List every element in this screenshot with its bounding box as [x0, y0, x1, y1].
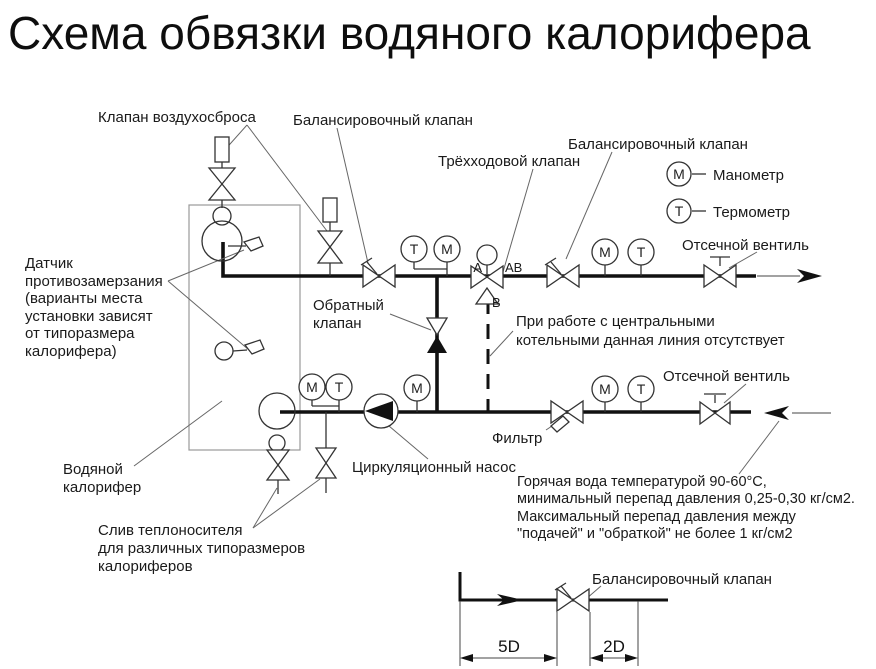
note-bypass: При работе с центральными котельными дан… [516, 313, 785, 349]
dimension-2d: 2D [603, 637, 625, 656]
detail-drawing: Балансировочный клапан 5D 2D [460, 571, 772, 666]
svg-text:Максимальный перепад давления: Максимальный перепад давления между [517, 509, 797, 525]
air-vent-valve-1 [209, 137, 235, 208]
svg-text:М: М [599, 244, 611, 260]
port-label-b: В [492, 295, 501, 310]
note-drain: Слив теплоносителя для различных типораз… [98, 522, 305, 575]
svg-text:М: М [441, 241, 453, 257]
legend-manometer-symbol: М [673, 166, 685, 182]
svg-text:калорифера): калорифера) [25, 343, 117, 360]
filter-strainer [551, 401, 583, 432]
flow-arrow-in [764, 406, 831, 420]
port-label-a: А [473, 260, 482, 275]
svg-text:калориферов: калориферов [98, 558, 193, 575]
gauge-thermometer-supply-right: Т [628, 239, 654, 276]
drain-valve-1 [267, 450, 289, 494]
svg-text:М: М [306, 379, 318, 395]
svg-text:М: М [599, 381, 611, 397]
gauge-manometer-return-right: М [592, 376, 618, 412]
gauge-manometer-supply-right: М [592, 239, 618, 276]
shutoff-valve-top [704, 257, 736, 287]
label-pump: Циркуляционный насос [352, 459, 516, 476]
svg-text:от типоразмера: от типоразмера [25, 325, 135, 342]
label-three-way-valve: Трёхходовой клапан [438, 153, 580, 170]
svg-text:Т: Т [637, 381, 646, 397]
dimension-5d: 5D [498, 637, 520, 656]
legend-thermometer-symbol: Т [675, 203, 684, 219]
circulation-pump [364, 394, 398, 428]
label-heater-line2: калорифер [63, 479, 141, 496]
svg-text:Датчик: Датчик [25, 255, 73, 272]
balancing-valve-2 [545, 258, 579, 287]
frost-sensor-2 [215, 340, 264, 360]
diagram-canvas: Схема обвязки водяного калорифера [0, 0, 876, 669]
note-frost-sensor: Датчик противозамерзания (варианты места… [25, 255, 163, 360]
shutoff-valve-bottom [700, 394, 730, 424]
svg-text:Горячая вода температурой 90-6: Горячая вода температурой 90-60°C, [517, 474, 767, 490]
svg-text:Т: Т [637, 244, 646, 260]
label-check-valve-line2: клапан [313, 315, 362, 332]
svg-text:При работе с центральными: При работе с центральными [516, 313, 715, 330]
drain-valve-2 [316, 412, 336, 493]
balancing-valve-detail [555, 583, 589, 611]
page-title: Схема обвязки водяного калорифера [8, 7, 811, 59]
svg-text:противозамерзания: противозамерзания [25, 273, 163, 290]
svg-text:Т: Т [410, 241, 419, 257]
legend-manometer-label: Манометр [713, 167, 784, 184]
note-hot-water: Горячая вода температурой 90-60°C, миним… [517, 474, 855, 542]
svg-text:котельными данная линия отсутс: котельными данная линия отсутствует [516, 332, 785, 349]
label-check-valve-line1: Обратный [313, 297, 384, 314]
label-balancing-valve-1: Балансировочный клапан [293, 112, 473, 129]
svg-text:М: М [411, 380, 423, 396]
svg-text:Слив теплоносителя: Слив теплоносителя [98, 522, 242, 539]
heater-bottom-header [259, 393, 295, 451]
svg-text:"подачей" и "обраткой" не боле: "подачей" и "обраткой" не более 1 кг/см2 [517, 526, 793, 542]
legend: М Манометр Т Термометр [667, 162, 790, 223]
gauge-thermometer-return-right: Т [628, 376, 654, 412]
check-valve [427, 318, 447, 353]
label-shutoff-valve-bottom: Отсечной вентиль [663, 368, 790, 385]
label-air-vent: Клапан воздухосброса [98, 109, 256, 126]
svg-text:Т: Т [335, 379, 344, 395]
legend-thermometer-label: Термометр [713, 204, 790, 221]
label-balancing-valve-2: Балансировочный клапан [568, 136, 748, 153]
svg-text:(варианты места: (варианты места [25, 290, 143, 307]
label-balancing-valve-detail: Балансировочный клапан [592, 571, 772, 588]
balancing-valve-1 [361, 258, 395, 287]
piping-diagram: Схема обвязки водяного калорифера [0, 0, 876, 669]
svg-text:установки зависят: установки зависят [25, 308, 153, 325]
svg-text:для различных типоразмеров: для различных типоразмеров [98, 540, 305, 557]
svg-text:минимальный перепад давления 0: минимальный перепад давления 0,25-0,30 к… [517, 491, 855, 507]
flow-arrow-out [757, 269, 822, 283]
frost-sensor-1 [228, 237, 263, 251]
label-shutoff-valve-top: Отсечной вентиль [682, 237, 809, 254]
label-heater-line1: Водяной [63, 461, 123, 478]
port-label-ab: АВ [505, 260, 522, 275]
gauge-manometer-supply-left: М [434, 236, 460, 276]
label-filter: Фильтр [492, 430, 542, 447]
gauge-manometer-return-mid: М [404, 375, 430, 412]
air-vent-valve-2 [318, 198, 342, 276]
